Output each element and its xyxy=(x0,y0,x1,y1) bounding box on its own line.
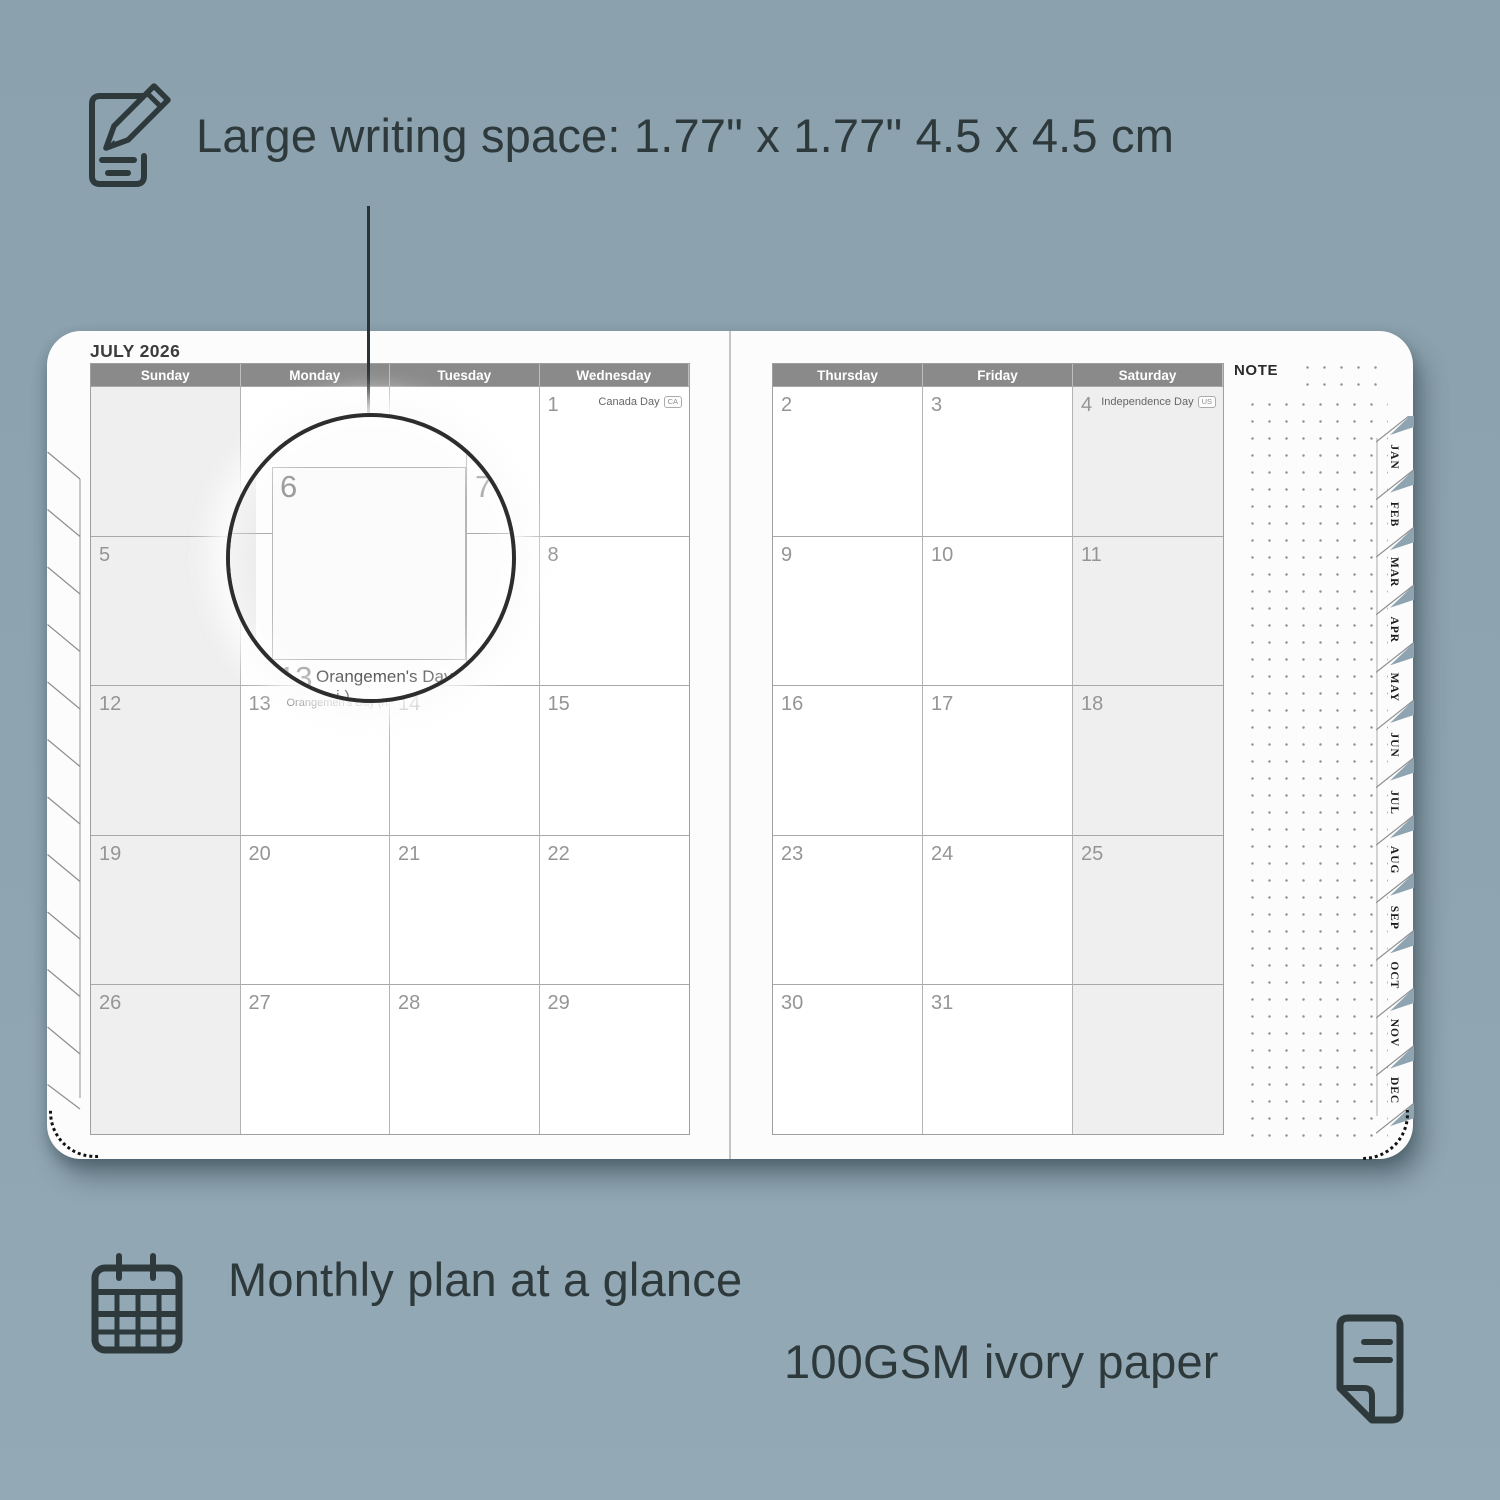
date-cell: 11 xyxy=(1073,536,1223,686)
left-tab-edge-hatching xyxy=(47,450,81,1110)
day-header-wednesday: Wednesday xyxy=(540,364,690,386)
date-cell xyxy=(1073,984,1223,1134)
month-tab-jul: JUL xyxy=(1388,790,1400,815)
pencil-notepad-icon xyxy=(84,80,180,190)
date-cell: 21 xyxy=(390,835,540,985)
date-cell: 20 xyxy=(241,835,391,985)
date-cell-orangemens-day: 13 Orangemen's Day (n.i.) xyxy=(241,685,391,835)
date-cell: 23 xyxy=(773,835,923,985)
date-cell: 9 xyxy=(773,536,923,686)
month-tab-dec: DEC xyxy=(1388,1077,1400,1104)
magnifier-vignette xyxy=(230,417,512,699)
month-tab-jun: JUN xyxy=(1388,732,1400,757)
paper-quality-callout: 100GSM ivory paper xyxy=(784,1334,1219,1389)
date-cell: 12 xyxy=(91,685,241,835)
holiday-label: Canada Day CA xyxy=(598,396,682,408)
date-cell-independence-day: 4 Independence Day US xyxy=(1073,386,1223,536)
month-tab-apr: APR xyxy=(1388,616,1400,643)
monthly-plan-callout: Monthly plan at a glance xyxy=(228,1252,742,1307)
month-tab-jan: JAN xyxy=(1388,444,1400,469)
month-tab-feb: FEB xyxy=(1388,502,1400,527)
date-cell: 31 xyxy=(923,984,1073,1134)
date-cell: 16 xyxy=(773,685,923,835)
month-tab-aug: AUG xyxy=(1388,846,1400,875)
date-cell: 18 xyxy=(1073,685,1223,835)
month-tab-oct: OCT xyxy=(1388,961,1400,989)
date-cell: 3 xyxy=(923,386,1073,536)
date-cell: 10 xyxy=(923,536,1073,686)
date-cell: 28 xyxy=(390,984,540,1134)
date-cell: 5 xyxy=(91,536,241,686)
month-tab-mar: MAR xyxy=(1388,557,1400,587)
calendar-right-grid: Thursday Friday Saturday 2 3 4 Independe… xyxy=(772,363,1224,1135)
date-cell: 26 xyxy=(91,984,241,1134)
day-header-friday: Friday xyxy=(923,364,1073,386)
writing-space-callout: Large writing space: 1.77" x 1.77" 4.5 x… xyxy=(196,108,1174,163)
product-image-canvas: { "colors": { "background": "#8EA4B0", "… xyxy=(0,0,1500,1500)
date-cell: 14 xyxy=(390,685,540,835)
calendar-grid-icon xyxy=(86,1252,186,1356)
magnifier-circle: 6 7 13 Orangemen's Day (n.i.) UK xyxy=(226,413,516,703)
date-cell: 25 xyxy=(1073,835,1223,985)
page-spine-divider xyxy=(729,331,731,1159)
month-tab-may: MAY xyxy=(1388,673,1400,702)
note-dot-grid xyxy=(1296,364,1388,388)
date-cell: 2 xyxy=(773,386,923,536)
date-cell: 19 xyxy=(91,835,241,985)
day-header-sunday: Sunday xyxy=(91,364,241,386)
stitch-corner-bottom-right xyxy=(1361,1110,1417,1166)
month-title: JULY 2026 xyxy=(90,341,180,362)
holiday-label: Independence Day US xyxy=(1101,396,1216,408)
stitch-corner-bottom-left xyxy=(44,1108,100,1164)
country-badge: US xyxy=(1198,396,1216,408)
callout-pointer-line xyxy=(367,206,370,421)
date-cell: 15 xyxy=(540,685,690,835)
date-cell: 24 xyxy=(923,835,1073,985)
date-cell-canada-day: 1 Canada Day CA xyxy=(540,386,690,536)
date-cell: 30 xyxy=(773,984,923,1134)
date-cell xyxy=(91,386,241,536)
date-cell: 29 xyxy=(540,984,690,1134)
date-cell: 17 xyxy=(923,685,1073,835)
day-header-saturday: Saturday xyxy=(1073,364,1223,386)
month-tab-nov: NOV xyxy=(1388,1019,1400,1048)
month-tab-strip: JAN FEB MAR APR MAY JUN JUL AUG SEP OCT … xyxy=(1376,416,1414,1140)
day-header-thursday: Thursday xyxy=(773,364,923,386)
month-tab-sep: SEP xyxy=(1388,906,1400,930)
date-cell: 22 xyxy=(540,835,690,985)
note-dot-grid xyxy=(1238,390,1388,1146)
country-badge: UK xyxy=(489,680,512,694)
date-cell: 8 xyxy=(540,536,690,686)
day-header-tuesday: Tuesday xyxy=(390,364,540,386)
paper-sheet-icon xyxy=(1320,1312,1416,1428)
country-badge: CA xyxy=(664,396,682,408)
note-label: NOTE xyxy=(1234,362,1278,379)
date-cell: 27 xyxy=(241,984,391,1134)
